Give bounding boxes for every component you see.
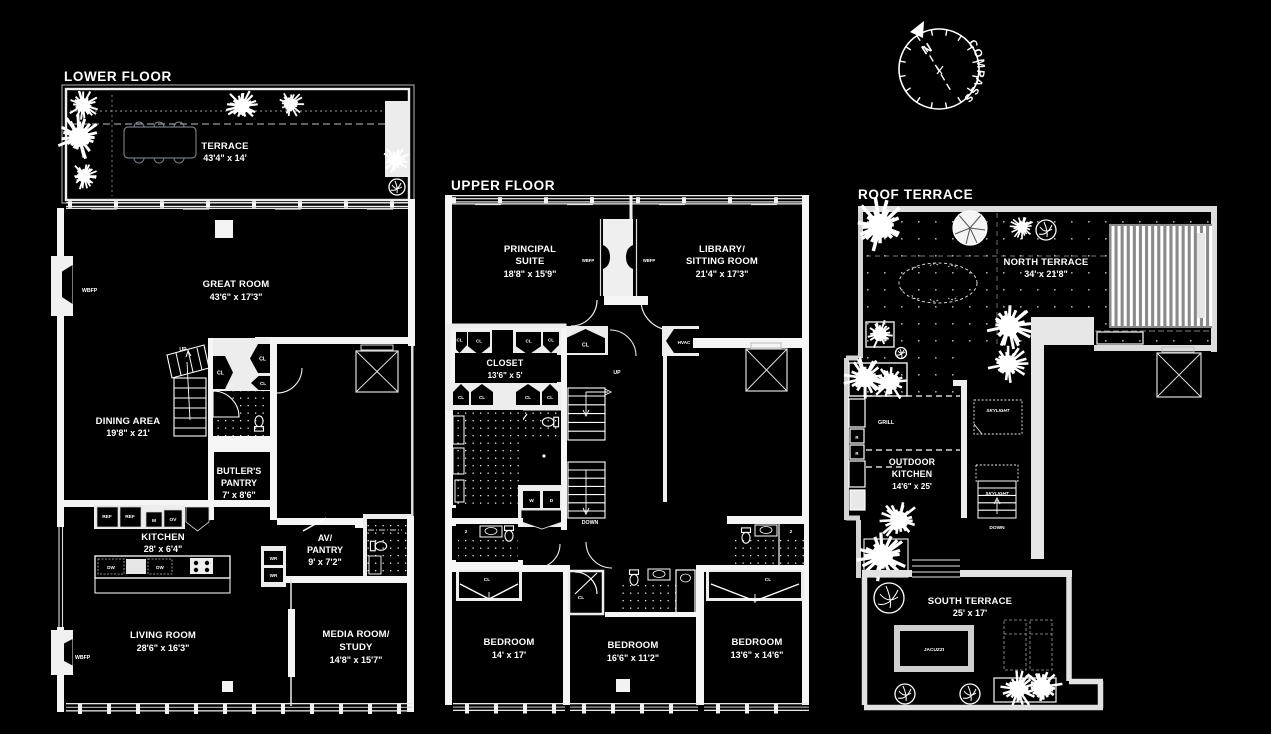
svg-text:WR: WR (270, 573, 278, 578)
svg-text:SITTING ROOM: SITTING ROOM (686, 256, 758, 267)
svg-text:M: M (152, 518, 156, 524)
svg-text:GRILL: GRILL (878, 420, 895, 426)
svg-text:JACUZZI: JACUZZI (924, 647, 945, 653)
svg-text:UPPER FLOOR: UPPER FLOOR (451, 178, 555, 193)
svg-text:REF: REF (102, 514, 112, 520)
svg-text:CL: CL (765, 577, 771, 583)
svg-text:14'8" x 15'7": 14'8" x 15'7" (330, 655, 383, 665)
svg-text:GREAT ROOM: GREAT ROOM (203, 279, 270, 290)
svg-text:W: W (529, 498, 534, 504)
svg-text:43'6" x 17'3": 43'6" x 17'3" (210, 292, 263, 302)
svg-text:CL: CL (479, 395, 485, 400)
svg-text:43'4" x 14': 43'4" x 14' (203, 153, 247, 163)
svg-text:WBFP: WBFP (75, 655, 91, 661)
svg-text:SKYLIGHT: SKYLIGHT (985, 491, 1009, 496)
svg-text:WBFP: WBFP (582, 258, 595, 263)
svg-text:BEDROOM: BEDROOM (731, 637, 782, 648)
svg-text:16'6" x 11'2": 16'6" x 11'2" (607, 653, 659, 663)
svg-text:SOUTH TERRACE: SOUTH TERRACE (928, 596, 1012, 607)
svg-text:CL: CL (582, 342, 590, 348)
svg-text:WBFP: WBFP (82, 288, 98, 294)
svg-text:REF: REF (125, 514, 135, 520)
svg-text:D: D (550, 498, 554, 504)
svg-text:19'8" x 21': 19'8" x 21' (106, 428, 150, 438)
svg-text:KITCHEN: KITCHEN (892, 469, 933, 479)
svg-text:13'6" x 5': 13'6" x 5' (487, 371, 522, 380)
svg-text:34' x 21'8": 34' x 21'8" (1024, 269, 1068, 279)
svg-text:28'6" x 16'3": 28'6" x 16'3" (137, 643, 190, 653)
svg-text:13'6" x 14'6": 13'6" x 14'6" (731, 650, 784, 660)
svg-text:CL: CL (476, 338, 482, 343)
svg-text:2: 2 (465, 529, 468, 535)
svg-text:CL: CL (548, 337, 554, 342)
svg-text:BEDROOM: BEDROOM (483, 637, 534, 648)
svg-text:PRINCIPAL: PRINCIPAL (504, 244, 556, 255)
svg-text:CL: CL (458, 395, 464, 400)
svg-text:TERRACE: TERRACE (201, 141, 248, 152)
svg-text:2: 2 (790, 529, 793, 535)
svg-text:18'8" x 15'9": 18'8" x 15'9" (504, 269, 557, 279)
svg-text:CL: CL (259, 357, 267, 363)
svg-text:CL: CL (547, 395, 553, 400)
svg-text:CL: CL (260, 381, 266, 386)
svg-text:DOWN: DOWN (989, 525, 1005, 531)
svg-text:DOWN: DOWN (582, 520, 599, 526)
svg-text:PANTRY: PANTRY (221, 478, 257, 488)
svg-text:WBFP: WBFP (643, 258, 656, 263)
svg-text:WR: WR (270, 556, 278, 561)
svg-text:CLOSET: CLOSET (487, 358, 524, 368)
svg-text:28' x 6'4": 28' x 6'4" (144, 544, 183, 554)
svg-text:BUTLER'S: BUTLER'S (217, 466, 262, 476)
svg-text:DW: DW (107, 565, 115, 570)
svg-text:14' x 17': 14' x 17' (492, 650, 526, 660)
svg-text:LOWER FLOOR: LOWER FLOOR (64, 69, 172, 84)
svg-text:9' x 7'2": 9' x 7'2" (308, 557, 342, 567)
svg-text:PANTRY: PANTRY (307, 545, 343, 555)
svg-text:CL: CL (217, 371, 225, 377)
svg-text:AV/: AV/ (318, 533, 333, 543)
svg-text:HVAC: HVAC (678, 340, 691, 345)
svg-text:DW: DW (156, 565, 164, 570)
svg-text:OV: OV (170, 517, 178, 523)
svg-text:MEDIA ROOM/: MEDIA ROOM/ (322, 629, 389, 640)
svg-text:CL: CL (578, 595, 584, 601)
svg-text:STUDY: STUDY (339, 642, 373, 653)
svg-text:LIBRARY/: LIBRARY/ (699, 244, 745, 255)
svg-text:KITCHEN: KITCHEN (141, 532, 185, 543)
svg-text:CL: CL (484, 577, 490, 583)
svg-text:UP: UP (613, 370, 621, 376)
svg-text:7' x 8'6": 7' x 8'6" (222, 490, 256, 500)
svg-text:14'6" x 25': 14'6" x 25' (892, 482, 932, 491)
svg-text:SUITE: SUITE (516, 256, 545, 267)
svg-text:CL: CL (456, 337, 462, 342)
svg-text:OUTDOOR: OUTDOOR (889, 457, 936, 467)
svg-text:BEDROOM: BEDROOM (607, 640, 658, 651)
svg-text:LIVING ROOM: LIVING ROOM (130, 630, 196, 641)
svg-text:NORTH TERRACE: NORTH TERRACE (1004, 257, 1089, 268)
svg-text:21'4" x 17'3": 21'4" x 17'3" (696, 269, 749, 279)
svg-text:25' x 17': 25' x 17' (953, 608, 987, 618)
svg-text:CL: CL (525, 338, 531, 343)
svg-text:CL: CL (525, 395, 531, 400)
svg-text:UP: UP (179, 347, 187, 353)
svg-text:SKYLIGHT: SKYLIGHT (986, 408, 1010, 413)
svg-text:DINING AREA: DINING AREA (96, 416, 161, 427)
